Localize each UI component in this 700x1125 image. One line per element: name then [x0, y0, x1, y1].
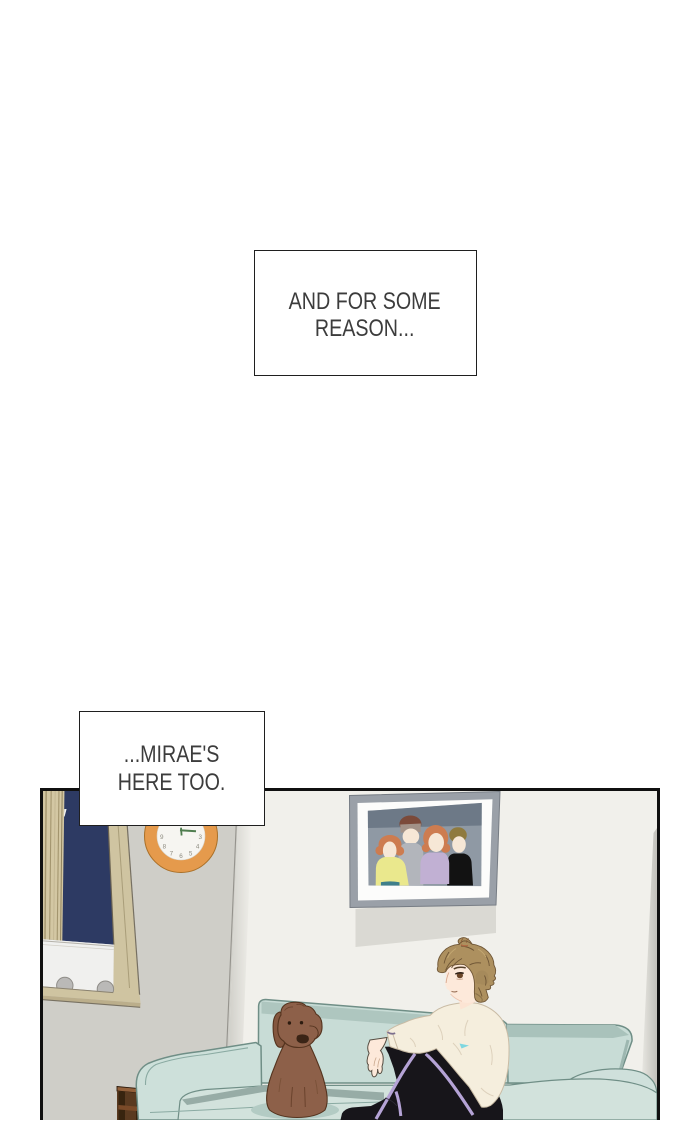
svg-text:5: 5 [189, 850, 193, 857]
svg-text:9: 9 [160, 834, 164, 841]
svg-text:8: 8 [163, 843, 167, 850]
svg-text:7: 7 [170, 850, 174, 857]
svg-text:4: 4 [196, 843, 200, 850]
svg-text:6: 6 [179, 853, 183, 860]
svg-text:3: 3 [199, 834, 203, 841]
